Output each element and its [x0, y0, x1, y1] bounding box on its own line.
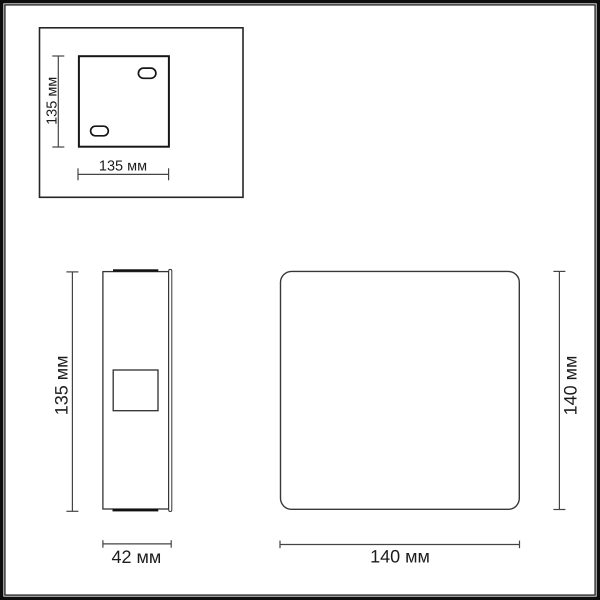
svg-text:140 мм: 140 мм: [370, 546, 430, 566]
svg-text:42 мм: 42 мм: [112, 547, 162, 567]
svg-text:135 мм: 135 мм: [44, 77, 60, 125]
svg-text:140 мм: 140 мм: [561, 356, 581, 416]
svg-text:135 мм: 135 мм: [52, 356, 72, 416]
svg-text:135 мм: 135 мм: [99, 158, 147, 174]
